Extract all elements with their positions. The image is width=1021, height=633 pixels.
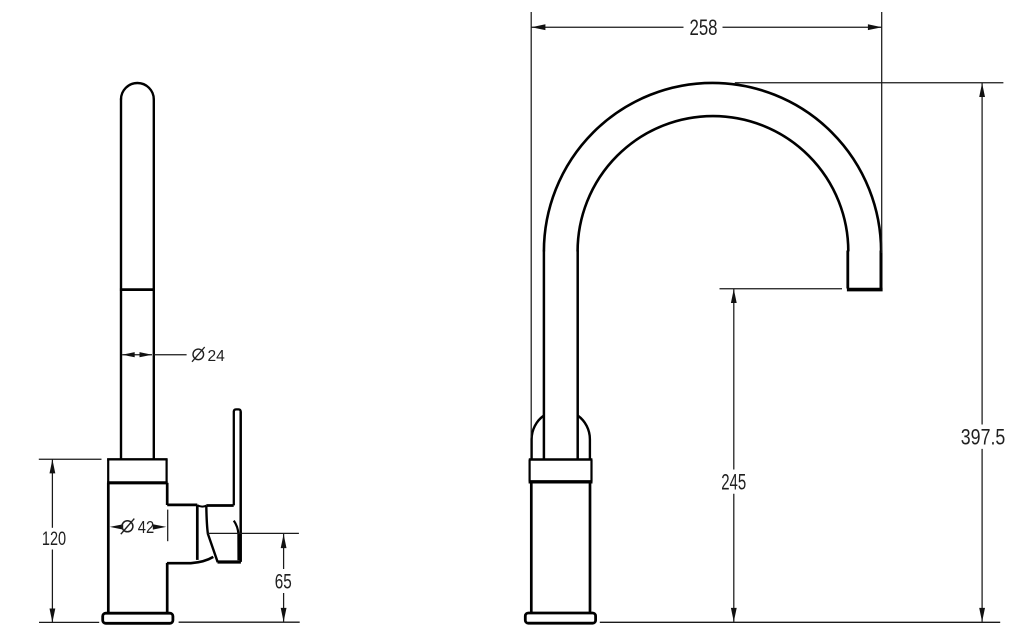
svg-text:24: 24 — [208, 348, 225, 365]
svg-text:258: 258 — [690, 15, 718, 40]
svg-text:397.5: 397.5 — [961, 425, 1006, 450]
svg-text:42: 42 — [138, 517, 154, 537]
svg-text:65: 65 — [275, 570, 292, 593]
svg-text:245: 245 — [721, 469, 746, 494]
svg-text:120: 120 — [42, 529, 66, 550]
